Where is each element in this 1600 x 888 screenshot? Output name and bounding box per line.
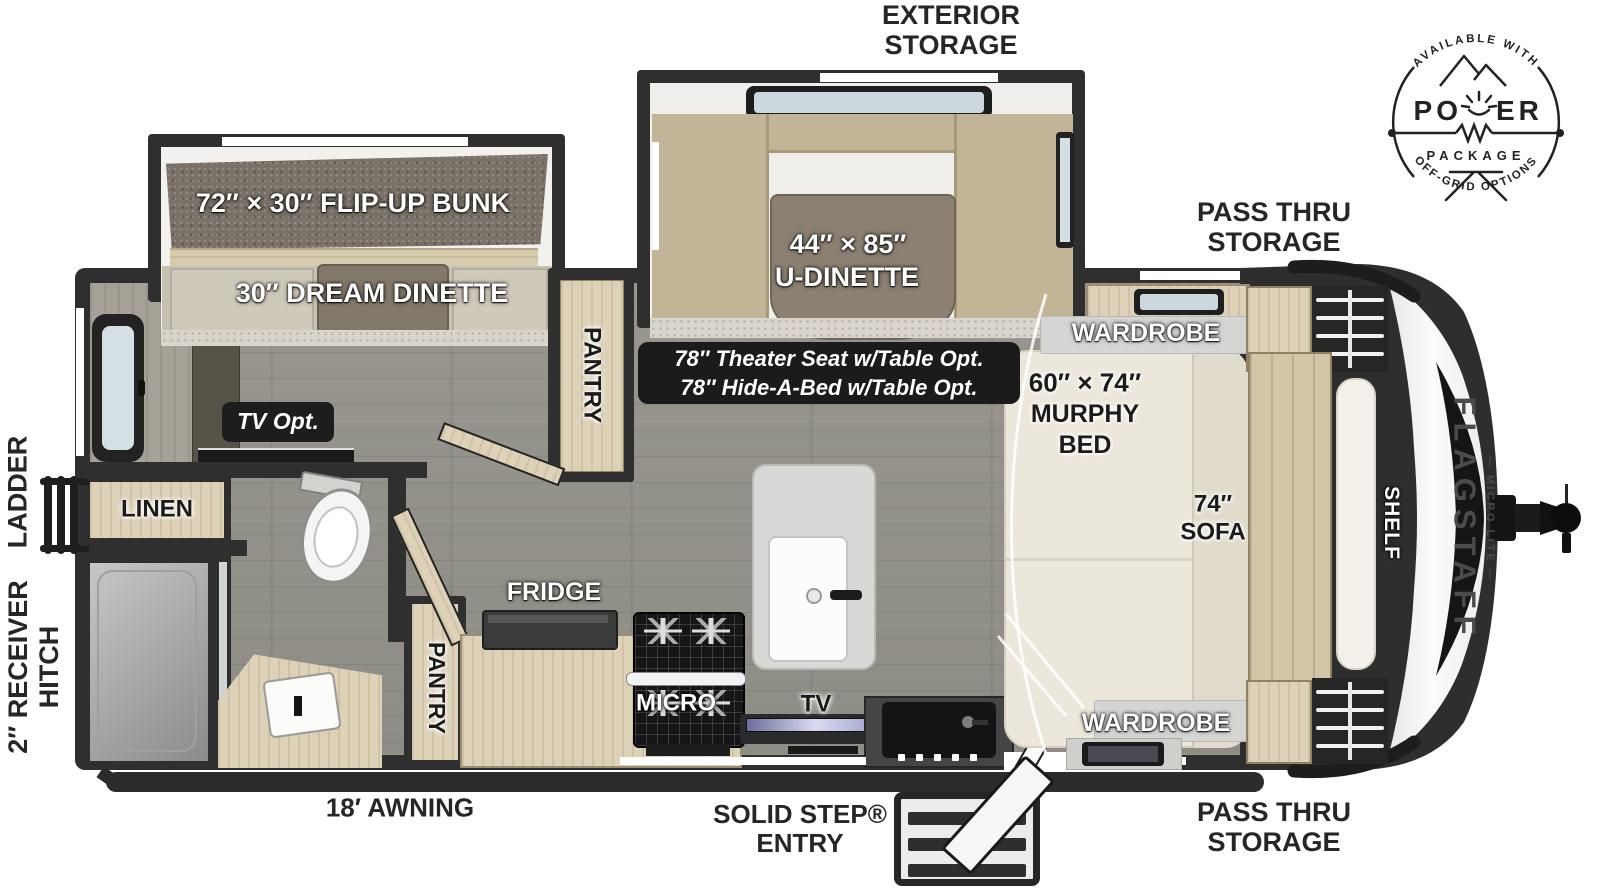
label-tv-opt: TV Opt. [237, 409, 319, 435]
rear-wall-window-gap [76, 308, 84, 456]
label-flip-up-bunk: 72″ × 30″ FLIP-UP BUNK [196, 188, 510, 218]
island-knob-icon [806, 588, 822, 604]
burner-icon [644, 618, 682, 644]
label-pass-thru-bottom: PASS THRU STORAGE [1197, 797, 1351, 857]
ladder-icon [40, 476, 88, 556]
bunk-slide-window-gap [222, 137, 468, 146]
u-dinette-side-window-glass [1060, 138, 1070, 242]
badge-arc-left [1393, 67, 1414, 177]
label-pantry-hall: PANTRY [578, 327, 605, 423]
bath-faucet-icon [294, 696, 302, 716]
label-micro: MICRO [636, 691, 716, 718]
range-handle [626, 672, 746, 686]
micro-lite-logo: — MICRO LITE — [1484, 456, 1496, 583]
wardrobe-bottom-cabinet [1246, 680, 1312, 764]
sink-pull [934, 754, 941, 761]
label-receiver-hitch: 2″ RECEIVER HITCH [3, 580, 65, 753]
top-wall-window-gap [1140, 271, 1240, 280]
option-hide-a-bed: 78″ Hide-A-Bed w/Table Opt. [681, 373, 978, 402]
sink-pull [916, 754, 923, 761]
front-skylight-glass [1140, 294, 1218, 310]
mountains-icon [1440, 56, 1506, 86]
tv-optional-unit [198, 448, 354, 462]
bath-sink [262, 671, 341, 738]
label-sofa-size: 74″ [1194, 492, 1232, 519]
badge-package: PACKAGE [1426, 148, 1525, 163]
label-solid-step-entry: SOLID STEP® ENTRY [713, 800, 887, 858]
label-murphy-bed: BED [1059, 431, 1112, 459]
sink-faucet-stem [972, 720, 988, 725]
sink-pull [898, 754, 905, 761]
label-pantry-kitchen: PANTRY [423, 642, 449, 734]
label-ladder: LADDER [2, 436, 33, 549]
label-murphy-size: 60″ × 74″ [1029, 368, 1141, 397]
label-exterior-storage: EXTERIOR STORAGE [882, 0, 1020, 60]
label-awning: 18′ AWNING [326, 793, 474, 822]
label-dream-dinette: 30″ DREAM DINETTE [236, 278, 508, 308]
u-dinette-left-wall-gap [652, 142, 659, 250]
label-fridge: FRIDGE [507, 578, 601, 606]
shower-pan-line [97, 570, 197, 752]
rear-window-glass [102, 326, 134, 450]
sofa-backrest [1192, 350, 1248, 748]
shelf-post [1348, 290, 1352, 368]
rear-window-latch-icon [138, 380, 145, 396]
badge-available-with: AVAILABLE WITH [1411, 33, 1541, 70]
hitch-icon [1490, 484, 1581, 553]
kitchen-sink [882, 702, 996, 758]
label-u-dinette-size: 44″ × 85″ [790, 229, 907, 259]
label-wardrobe-bottom: WARDROBE [1082, 709, 1231, 737]
bath-wall-linen [75, 540, 247, 556]
range-base [646, 744, 730, 756]
u-dinette-bench-left [652, 114, 769, 328]
bed-pillow [1336, 378, 1376, 670]
label-linen: LINEN [121, 497, 193, 524]
tv-stand [788, 746, 858, 754]
option-theater-seat: 78″ Theater Seat w/Table Opt. [674, 344, 983, 373]
label-pass-thru-top: PASS THRU STORAGE [1197, 197, 1351, 257]
sink-pull [952, 754, 959, 761]
label-tv: TV [801, 692, 832, 719]
options-callout: 78″ Theater Seat w/Table Opt. 78″ Hide-A… [638, 342, 1020, 404]
bottom-wall-window-gap [620, 757, 866, 765]
svg-text:AVAILABLE WITH: AVAILABLE WITH [1411, 33, 1541, 70]
fridge-top-vent [488, 615, 608, 623]
flagstaff-logo: FLAGSTAFF [1447, 397, 1482, 642]
label-u-dinette: U-DINETTE [775, 262, 919, 292]
u-dinette-skylight-glass [754, 92, 984, 113]
label-sofa: SOFA [1180, 520, 1245, 547]
u-dinette-slide-window-gap [820, 73, 998, 82]
power-package-badge: AVAILABLE WITH OFF-GRID OPTIONS PO ER PA… [1376, 22, 1576, 222]
island-handle-icon [830, 590, 862, 600]
resistor-line-icon [1389, 125, 1563, 141]
badge-power-left: PO [1414, 95, 1462, 126]
floorplan: 78″ Theater Seat w/Table Opt. 78″ Hide-A… [0, 0, 1600, 888]
sink-pull [970, 754, 977, 761]
badge-power-right: ER [1496, 95, 1543, 126]
awning-bar [106, 772, 1264, 792]
label-shelf: SHELF [1379, 486, 1403, 560]
shelf-post [1348, 682, 1352, 760]
sun-icon [1462, 92, 1496, 115]
bunk-slide-carpet [161, 330, 552, 346]
label-wardrobe-top: WARDROBE [1072, 319, 1221, 347]
label-murphy: MURPHY [1031, 400, 1139, 428]
burner-icon [692, 618, 730, 644]
